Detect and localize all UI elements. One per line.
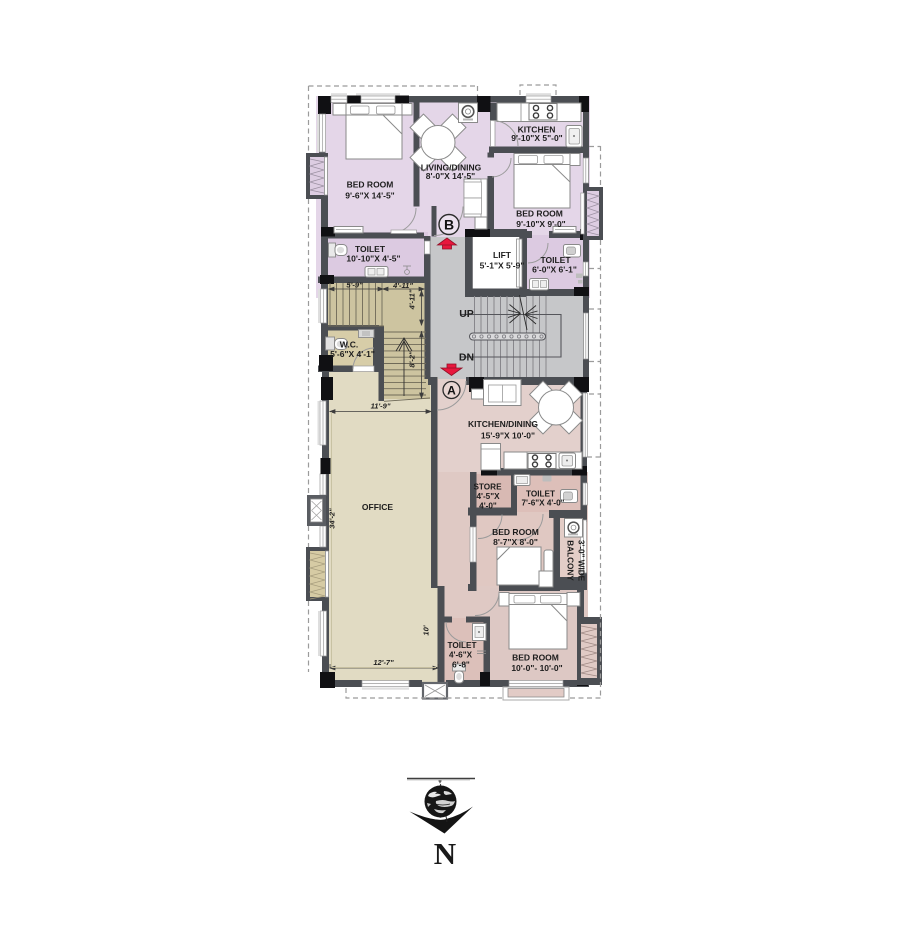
svg-text:12'-7": 12'-7" xyxy=(373,658,394,667)
svg-text:10': 10' xyxy=(422,625,431,635)
svg-text:4'-11": 4'-11" xyxy=(408,289,417,310)
svg-text:BALCONY: BALCONY xyxy=(566,540,575,581)
svg-text:4'-11": 4'-11" xyxy=(392,281,413,290)
svg-text:B: B xyxy=(444,217,454,233)
svg-text:A: A xyxy=(447,384,456,398)
svg-text:BED ROOM: BED ROOM xyxy=(492,527,539,537)
svg-text:8'-7"X 8'-0": 8'-7"X 8'-0" xyxy=(493,537,538,547)
svg-text:UP: UP xyxy=(459,308,474,320)
svg-text:4'-0": 4'-0" xyxy=(479,502,497,511)
svg-text:LIFT: LIFT xyxy=(493,250,512,260)
svg-text:TOILET: TOILET xyxy=(448,641,477,650)
svg-text:TOILET: TOILET xyxy=(540,255,571,265)
svg-text:9'-6"X 14'-5": 9'-6"X 14'-5" xyxy=(345,191,394,201)
svg-text:5'-9": 5'-9" xyxy=(346,281,363,290)
svg-text:10'-10"X 4'-5": 10'-10"X 4'-5" xyxy=(346,254,400,264)
svg-text:5'-1"X 5'-9": 5'-1"X 5'-9" xyxy=(480,261,525,271)
svg-text:TOILET: TOILET xyxy=(355,244,386,254)
svg-text:N: N xyxy=(434,836,456,871)
svg-text:4'-6"X: 4'-6"X xyxy=(449,651,473,660)
svg-text:11'-9": 11'-9" xyxy=(371,402,391,411)
svg-text:6'-8": 6'-8" xyxy=(452,661,470,670)
svg-text:9'-10"X 9'-0": 9'-10"X 9'-0" xyxy=(516,219,565,229)
svg-text:TOILET: TOILET xyxy=(526,490,555,499)
svg-text:BED ROOM: BED ROOM xyxy=(347,180,394,190)
svg-text:BED ROOM: BED ROOM xyxy=(512,653,559,663)
svg-text:DN: DN xyxy=(459,352,474,364)
svg-text:8'-0"X 14'-5": 8'-0"X 14'-5" xyxy=(426,171,475,181)
svg-text:BED ROOM: BED ROOM xyxy=(516,209,563,219)
svg-text:4'-5"X: 4'-5"X xyxy=(476,492,500,501)
svg-text:3'-0" WIDE: 3'-0" WIDE xyxy=(577,540,586,582)
svg-text:OFFICE: OFFICE xyxy=(362,502,393,512)
svg-text:W.C.: W.C. xyxy=(340,340,358,350)
svg-text:5'-6"X 4'-1": 5'-6"X 4'-1" xyxy=(330,349,375,359)
svg-text:10'-0"- 10'-0": 10'-0"- 10'-0" xyxy=(511,663,562,673)
svg-text:6'-0"X 6'-1": 6'-0"X 6'-1" xyxy=(532,265,577,275)
svg-text:15'-9"X 10'-0": 15'-9"X 10'-0" xyxy=(481,431,535,441)
svg-text:34'-2": 34'-2" xyxy=(328,508,337,529)
svg-text:KITCHEN/DINING: KITCHEN/DINING xyxy=(468,419,538,429)
svg-text:STORE: STORE xyxy=(473,483,502,492)
svg-text:9'-10"X 5"-0": 9'-10"X 5"-0" xyxy=(511,133,562,143)
svg-text:7'-6"X 4'-0": 7'-6"X 4'-0" xyxy=(521,499,564,508)
svg-text:8'-2": 8'-2" xyxy=(408,351,417,368)
